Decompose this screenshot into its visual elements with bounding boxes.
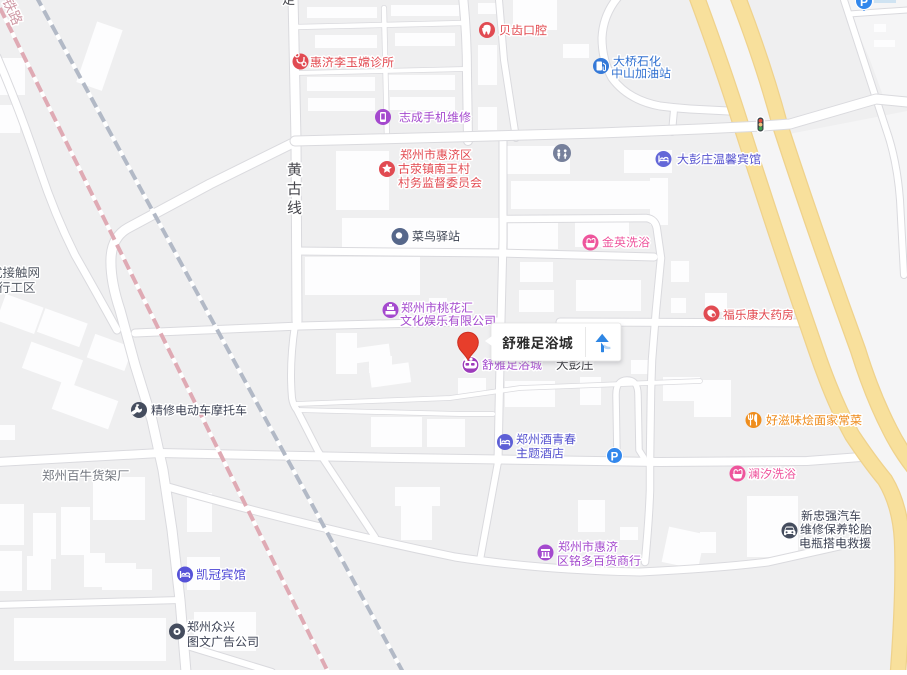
svg-text:P: P (860, 0, 868, 9)
svg-text:P: P (611, 452, 619, 464)
